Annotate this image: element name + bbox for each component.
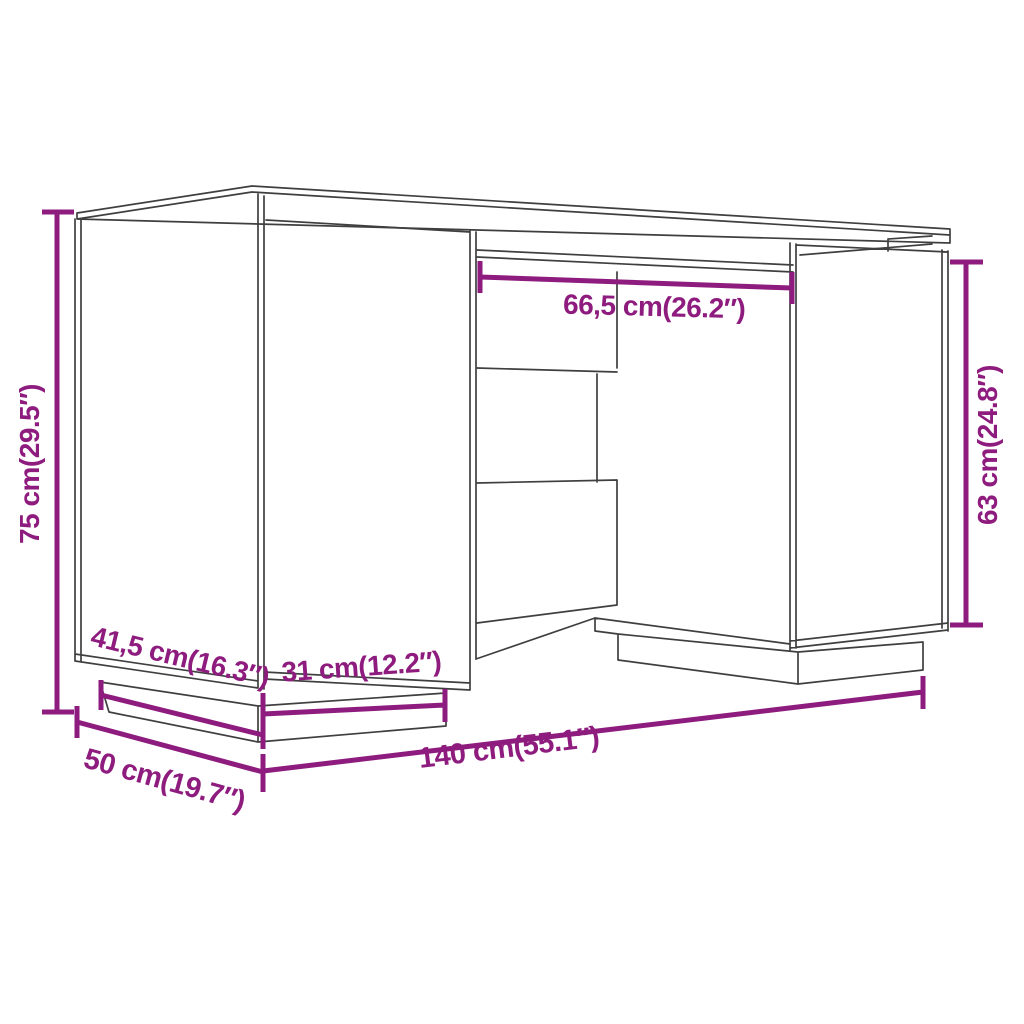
dimension-overall-height: 75 cm(29.5″): [14, 212, 74, 712]
dimension-line-overall-height: [42, 212, 74, 712]
desk-dimension-diagram: 75 cm(29.5″) 66,5 cm(26.2″) 63 cm(24.8″)…: [0, 0, 1024, 1024]
right-cabinet-outline: [790, 236, 948, 650]
dimension-cabinet-height: 63 cm(24.8″): [950, 262, 1003, 625]
dimension-label-plinth-depth: 41,5 cm(16.3″): [88, 620, 273, 693]
dimension-overall-depth: 50 cm(19.7″): [77, 706, 263, 818]
dimension-label-overall-width: 140 cm(55.1″): [417, 721, 601, 775]
dimension-label-overall-height: 75 cm(29.5″): [14, 384, 45, 544]
dimension-label-knee-space-width: 66,5 cm(26.2″): [563, 289, 746, 325]
left-cabinet-outline: [75, 194, 476, 690]
dimension-overall-width: 140 cm(55.1″): [263, 676, 923, 775]
dimension-annotations: 75 cm(29.5″) 66,5 cm(26.2″) 63 cm(24.8″)…: [14, 212, 1003, 818]
diagram-canvas: 75 cm(29.5″) 66,5 cm(26.2″) 63 cm(24.8″)…: [0, 0, 1024, 1024]
desktop-outline: [77, 186, 950, 243]
dimension-label-cabinet-height: 63 cm(24.8″): [972, 365, 1003, 525]
dimension-label-plinth-width: 31 cm(12.2″): [280, 645, 442, 687]
dimension-label-overall-depth: 50 cm(19.7″): [80, 743, 248, 818]
right-plinth-outline: [595, 618, 923, 684]
dimension-line-plinth-width: [263, 689, 445, 722]
